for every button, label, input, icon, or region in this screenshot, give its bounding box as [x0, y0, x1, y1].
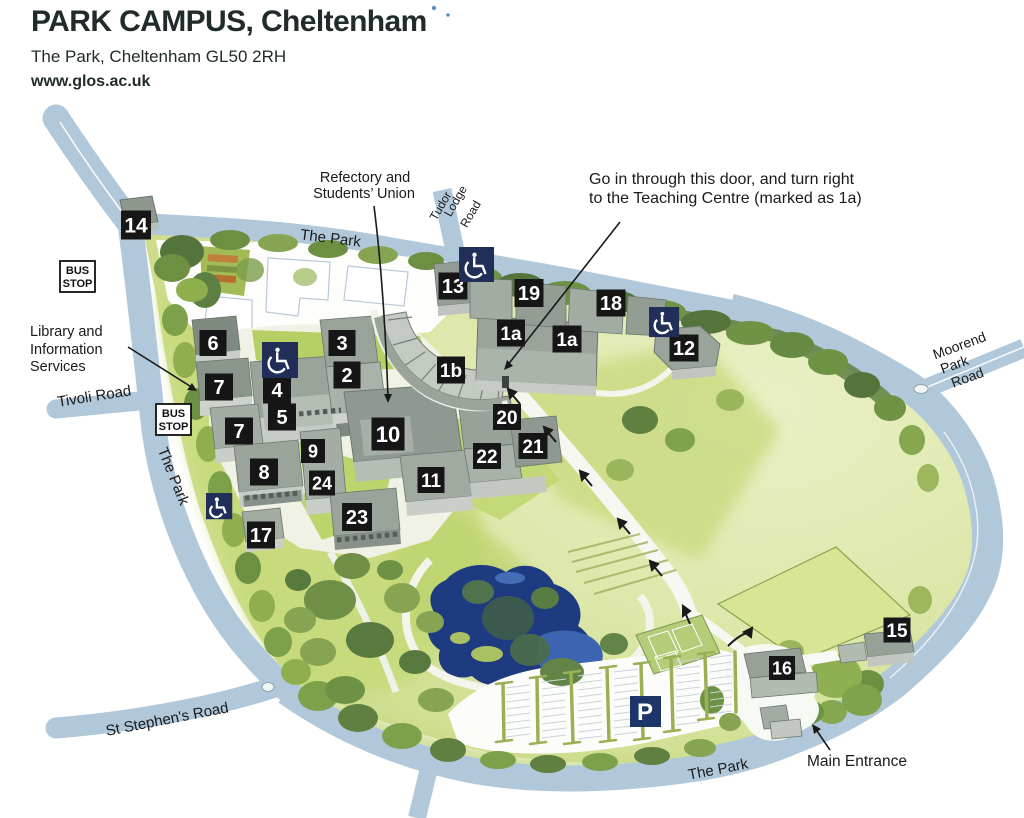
- svg-text:1b: 1b: [440, 361, 462, 382]
- svg-text:11: 11: [421, 471, 442, 492]
- svg-text:Services: Services: [30, 359, 86, 375]
- svg-text:PARK CAMPUS, Cheltenham: PARK CAMPUS, Cheltenham: [31, 5, 427, 38]
- svg-text:to the Teaching Centre (marked: to the Teaching Centre (marked as 1a): [589, 190, 862, 207]
- svg-text:7: 7: [213, 377, 224, 399]
- svg-text:STOP: STOP: [159, 421, 189, 433]
- svg-text:Information: Information: [30, 342, 103, 358]
- svg-text:STOP: STOP: [63, 278, 93, 290]
- svg-text:6: 6: [207, 333, 218, 355]
- svg-text:24: 24: [312, 474, 332, 494]
- svg-text:19: 19: [518, 283, 540, 305]
- svg-text:8: 8: [258, 462, 269, 484]
- svg-text:Students’ Union: Students’ Union: [313, 186, 415, 202]
- svg-text:21: 21: [522, 437, 544, 458]
- svg-text:5: 5: [276, 407, 287, 429]
- svg-text:Refectory and: Refectory and: [320, 170, 410, 186]
- svg-text:23: 23: [346, 507, 368, 529]
- svg-text:1a: 1a: [500, 324, 522, 345]
- svg-text:2: 2: [341, 365, 352, 387]
- svg-text:BUS: BUS: [162, 408, 185, 420]
- svg-text:Main Entrance: Main Entrance: [807, 753, 907, 770]
- svg-text:15: 15: [886, 621, 908, 642]
- svg-text:17: 17: [250, 525, 272, 547]
- svg-text:Go in through this door, and t: Go in through this door, and turn right: [589, 171, 855, 188]
- svg-text:3: 3: [336, 333, 347, 355]
- svg-text:Library and: Library and: [30, 324, 103, 340]
- svg-text:9: 9: [308, 442, 318, 462]
- svg-text:4: 4: [271, 380, 283, 402]
- svg-text:BUS: BUS: [66, 265, 89, 277]
- svg-text:www.glos.ac.uk: www.glos.ac.uk: [30, 73, 151, 90]
- svg-text:18: 18: [600, 293, 622, 315]
- svg-text:12: 12: [673, 338, 695, 360]
- svg-text:P: P: [637, 699, 653, 726]
- svg-text:22: 22: [476, 447, 497, 468]
- svg-text:16: 16: [772, 659, 792, 679]
- svg-text:7: 7: [233, 421, 244, 443]
- svg-text:20: 20: [496, 408, 517, 429]
- svg-text:1a: 1a: [556, 330, 578, 351]
- svg-text:The Park, Cheltenham GL50 2RH: The Park, Cheltenham GL50 2RH: [31, 47, 286, 66]
- svg-text:14: 14: [124, 215, 148, 238]
- svg-text:10: 10: [376, 422, 400, 447]
